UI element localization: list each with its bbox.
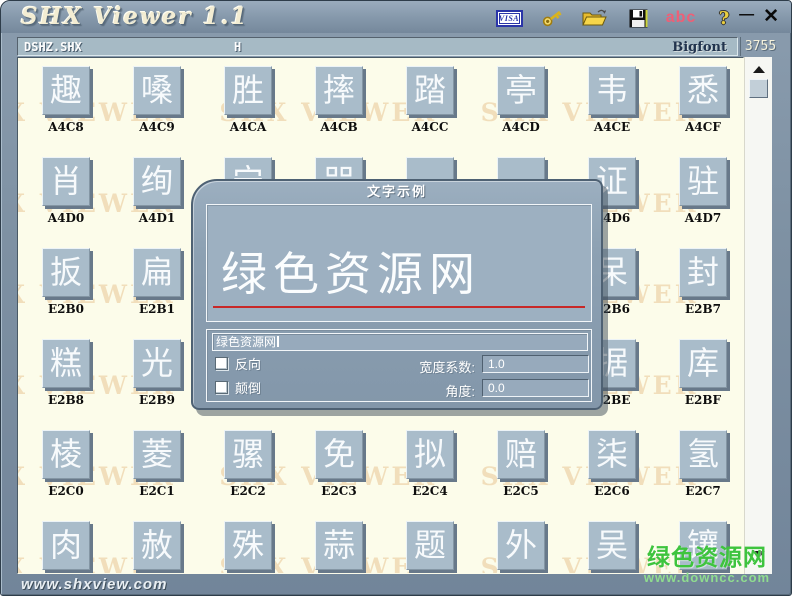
tile-character: 悉 [687, 67, 719, 114]
char-tile[interactable]: 拟 [406, 430, 454, 479]
tile-character: 柒 [596, 431, 628, 478]
tile-code: A4D1 [127, 211, 187, 225]
tile-code: E2B1 [127, 302, 187, 316]
tile-character: 亭 [505, 67, 537, 114]
tile-code: E2C3 [309, 484, 369, 498]
preview-underline [213, 306, 585, 308]
scroll-down-icon[interactable] [753, 551, 765, 558]
width-factor-input[interactable]: 1.0 [482, 355, 589, 373]
char-tile[interactable]: 题 [406, 521, 454, 570]
tile-code: A4CC [400, 120, 460, 134]
tile-code: E2B7 [673, 302, 733, 316]
tile-character: 扁 [141, 249, 173, 296]
scroll-up-icon[interactable] [753, 66, 765, 73]
upside-down-label: 颠倒 [235, 378, 261, 397]
char-tile[interactable]: 肉 [42, 521, 90, 570]
char-tile[interactable]: 库 [679, 339, 727, 388]
tile-code: A4CA [218, 120, 278, 134]
tile-code: E2C0 [36, 484, 96, 498]
current-char-label: H [234, 40, 241, 54]
tile-character: 糕 [50, 340, 82, 387]
char-count: 3755 [741, 37, 780, 56]
tile-code: A4CD [491, 120, 551, 134]
titlebar[interactable]: SHX Viewer 1.1 VISA [1, 1, 792, 33]
tile-character: 库 [687, 340, 719, 387]
font-type-label: Bigfont [672, 40, 727, 55]
site-url: www.shxview.com [21, 576, 167, 593]
tile-character: 赔 [505, 431, 537, 478]
char-tile[interactable]: 绚 [133, 157, 181, 206]
tile-code: E2C5 [491, 484, 551, 498]
options-panel: 绿色资源网 反向 颠倒 宽度系数: 1.0 角度: 0.0 [206, 329, 592, 402]
char-tile[interactable]: 封 [679, 248, 727, 297]
save-icon[interactable] [624, 6, 652, 30]
tile-character: 吴 [596, 522, 628, 569]
char-tile[interactable]: 趣 [42, 66, 90, 115]
app-title: SHX Viewer 1.1 [21, 2, 249, 32]
minimize-button[interactable]: — [739, 1, 753, 29]
tile-character: 免 [323, 431, 355, 478]
tile-code: E2C6 [582, 484, 642, 498]
key-icon[interactable] [538, 6, 566, 30]
tile-character: 菱 [141, 431, 173, 478]
width-factor-label: 宽度系数: [375, 357, 475, 376]
font-file-name: DSHZ.SHX [24, 40, 82, 54]
char-tile[interactable]: 肖 [42, 157, 90, 206]
upside-down-option: 颠倒 [215, 380, 261, 394]
char-tile[interactable]: 赦 [133, 521, 181, 570]
tile-character: 封 [687, 249, 719, 296]
tile-code: E2C4 [400, 484, 460, 498]
help-icon[interactable]: ? [710, 6, 738, 30]
tile-character: 踏 [414, 67, 446, 114]
char-tile[interactable]: 糕 [42, 339, 90, 388]
tile-code: E2C1 [127, 484, 187, 498]
tile-code: E2C7 [673, 484, 733, 498]
char-tile[interactable]: 驻 [679, 157, 727, 206]
dialog-title: 文字示例 [367, 184, 427, 199]
scroll-thumb[interactable] [749, 79, 768, 98]
tile-code: E2BF [673, 393, 733, 407]
tile-character: 棱 [50, 431, 82, 478]
tile-character: 胜 [232, 67, 264, 114]
tile-code: A4CE [582, 120, 642, 134]
tile-character: 题 [414, 522, 446, 569]
upside-down-checkbox[interactable] [215, 381, 228, 394]
text-caret [277, 336, 279, 347]
scrollbar[interactable] [744, 57, 772, 574]
toolbar: VISA [495, 5, 738, 31]
char-count-panel: 3755 [740, 37, 780, 56]
char-tile[interactable]: 踏 [406, 66, 454, 115]
tile-code: A4CF [673, 120, 733, 134]
tile-character: 拟 [414, 431, 446, 478]
char-tile[interactable]: 镶 [679, 521, 727, 570]
window-controls: — ✕ [739, 3, 779, 31]
char-tile[interactable]: 嗓 [133, 66, 181, 115]
tile-character: 绚 [141, 158, 173, 205]
tile-code: E2B8 [36, 393, 96, 407]
tile-code: A4C8 [36, 120, 96, 134]
char-tile[interactable]: 胜 [224, 66, 272, 115]
sample-text-input[interactable]: 绿色资源网 [212, 333, 588, 351]
tile-character: 嗓 [141, 67, 173, 114]
char-tile[interactable]: 外 [497, 521, 545, 570]
char-tile[interactable]: 悉 [679, 66, 727, 115]
char-tile[interactable]: 光 [133, 339, 181, 388]
tile-character: 韦 [596, 67, 628, 114]
tile-character: 殊 [232, 522, 264, 569]
tile-code: E2B9 [127, 393, 187, 407]
char-tile[interactable]: 扁 [133, 248, 181, 297]
angle-input[interactable]: 0.0 [482, 379, 589, 397]
status-bar: DSHZ.SHX H Bigfont [17, 37, 738, 56]
tile-character: 扳 [50, 249, 82, 296]
char-tile[interactable]: 赔 [497, 430, 545, 479]
char-tile[interactable]: 韦 [588, 66, 636, 115]
tile-code: A4CB [309, 120, 369, 134]
tile-character: 赦 [141, 522, 173, 569]
tile-code: A4D7 [673, 211, 733, 225]
tile-character: 蒜 [323, 522, 355, 569]
char-tile[interactable]: 菱 [133, 430, 181, 479]
char-tile[interactable]: 亭 [497, 66, 545, 115]
char-tile[interactable]: 棱 [42, 430, 90, 479]
app-window: SHX Viewer 1.1 VISA [0, 0, 792, 596]
char-tile[interactable]: 扳 [42, 248, 90, 297]
preview-panel: 绿色资源网 [206, 204, 592, 322]
tile-character: 氢 [687, 431, 719, 478]
tile-code: A4D0 [36, 211, 96, 225]
angle-label: 角度: [375, 381, 475, 400]
tile-character: 驻 [687, 158, 719, 205]
char-tile[interactable]: 吴 [588, 521, 636, 570]
close-button[interactable]: ✕ [763, 3, 779, 31]
tile-code: E2C2 [218, 484, 278, 498]
char-tile[interactable]: 免 [315, 430, 363, 479]
tile-character: 摔 [323, 67, 355, 114]
char-tile[interactable]: 摔 [315, 66, 363, 115]
tile-character: 光 [141, 340, 173, 387]
tile-character: 骡 [232, 431, 264, 478]
preview-text: 绿色资源网 [221, 245, 481, 303]
abc-text-icon[interactable]: abc [667, 6, 695, 30]
tile-code: A4C9 [127, 120, 187, 134]
tile-character: 肖 [50, 158, 82, 205]
dialog-titlebar[interactable]: 文字示例 [193, 181, 601, 202]
tile-character: 镶 [687, 522, 719, 569]
visa-icon[interactable]: VISA [495, 6, 523, 30]
text-sample-dialog: 文字示例 绿色资源网 绿色资源网 反向 颠倒 宽度系数: 1.0 角度: 0.0 [191, 179, 603, 410]
char-tile[interactable]: 殊 [224, 521, 272, 570]
open-folder-icon[interactable] [581, 6, 609, 30]
reverse-label: 反向 [235, 354, 261, 373]
reverse-option: 反向 [215, 356, 261, 370]
char-tile[interactable]: 氢 [679, 430, 727, 479]
tile-character: 外 [505, 522, 537, 569]
char-tile[interactable]: 骡 [224, 430, 272, 479]
char-tile[interactable]: 柒 [588, 430, 636, 479]
reverse-checkbox[interactable] [215, 357, 228, 370]
tile-code: E2B0 [36, 302, 96, 316]
sample-text-value: 绿色资源网 [216, 335, 276, 349]
tile-character: 趣 [50, 67, 82, 114]
char-tile[interactable]: 蒜 [315, 521, 363, 570]
tile-character: 肉 [50, 522, 82, 569]
